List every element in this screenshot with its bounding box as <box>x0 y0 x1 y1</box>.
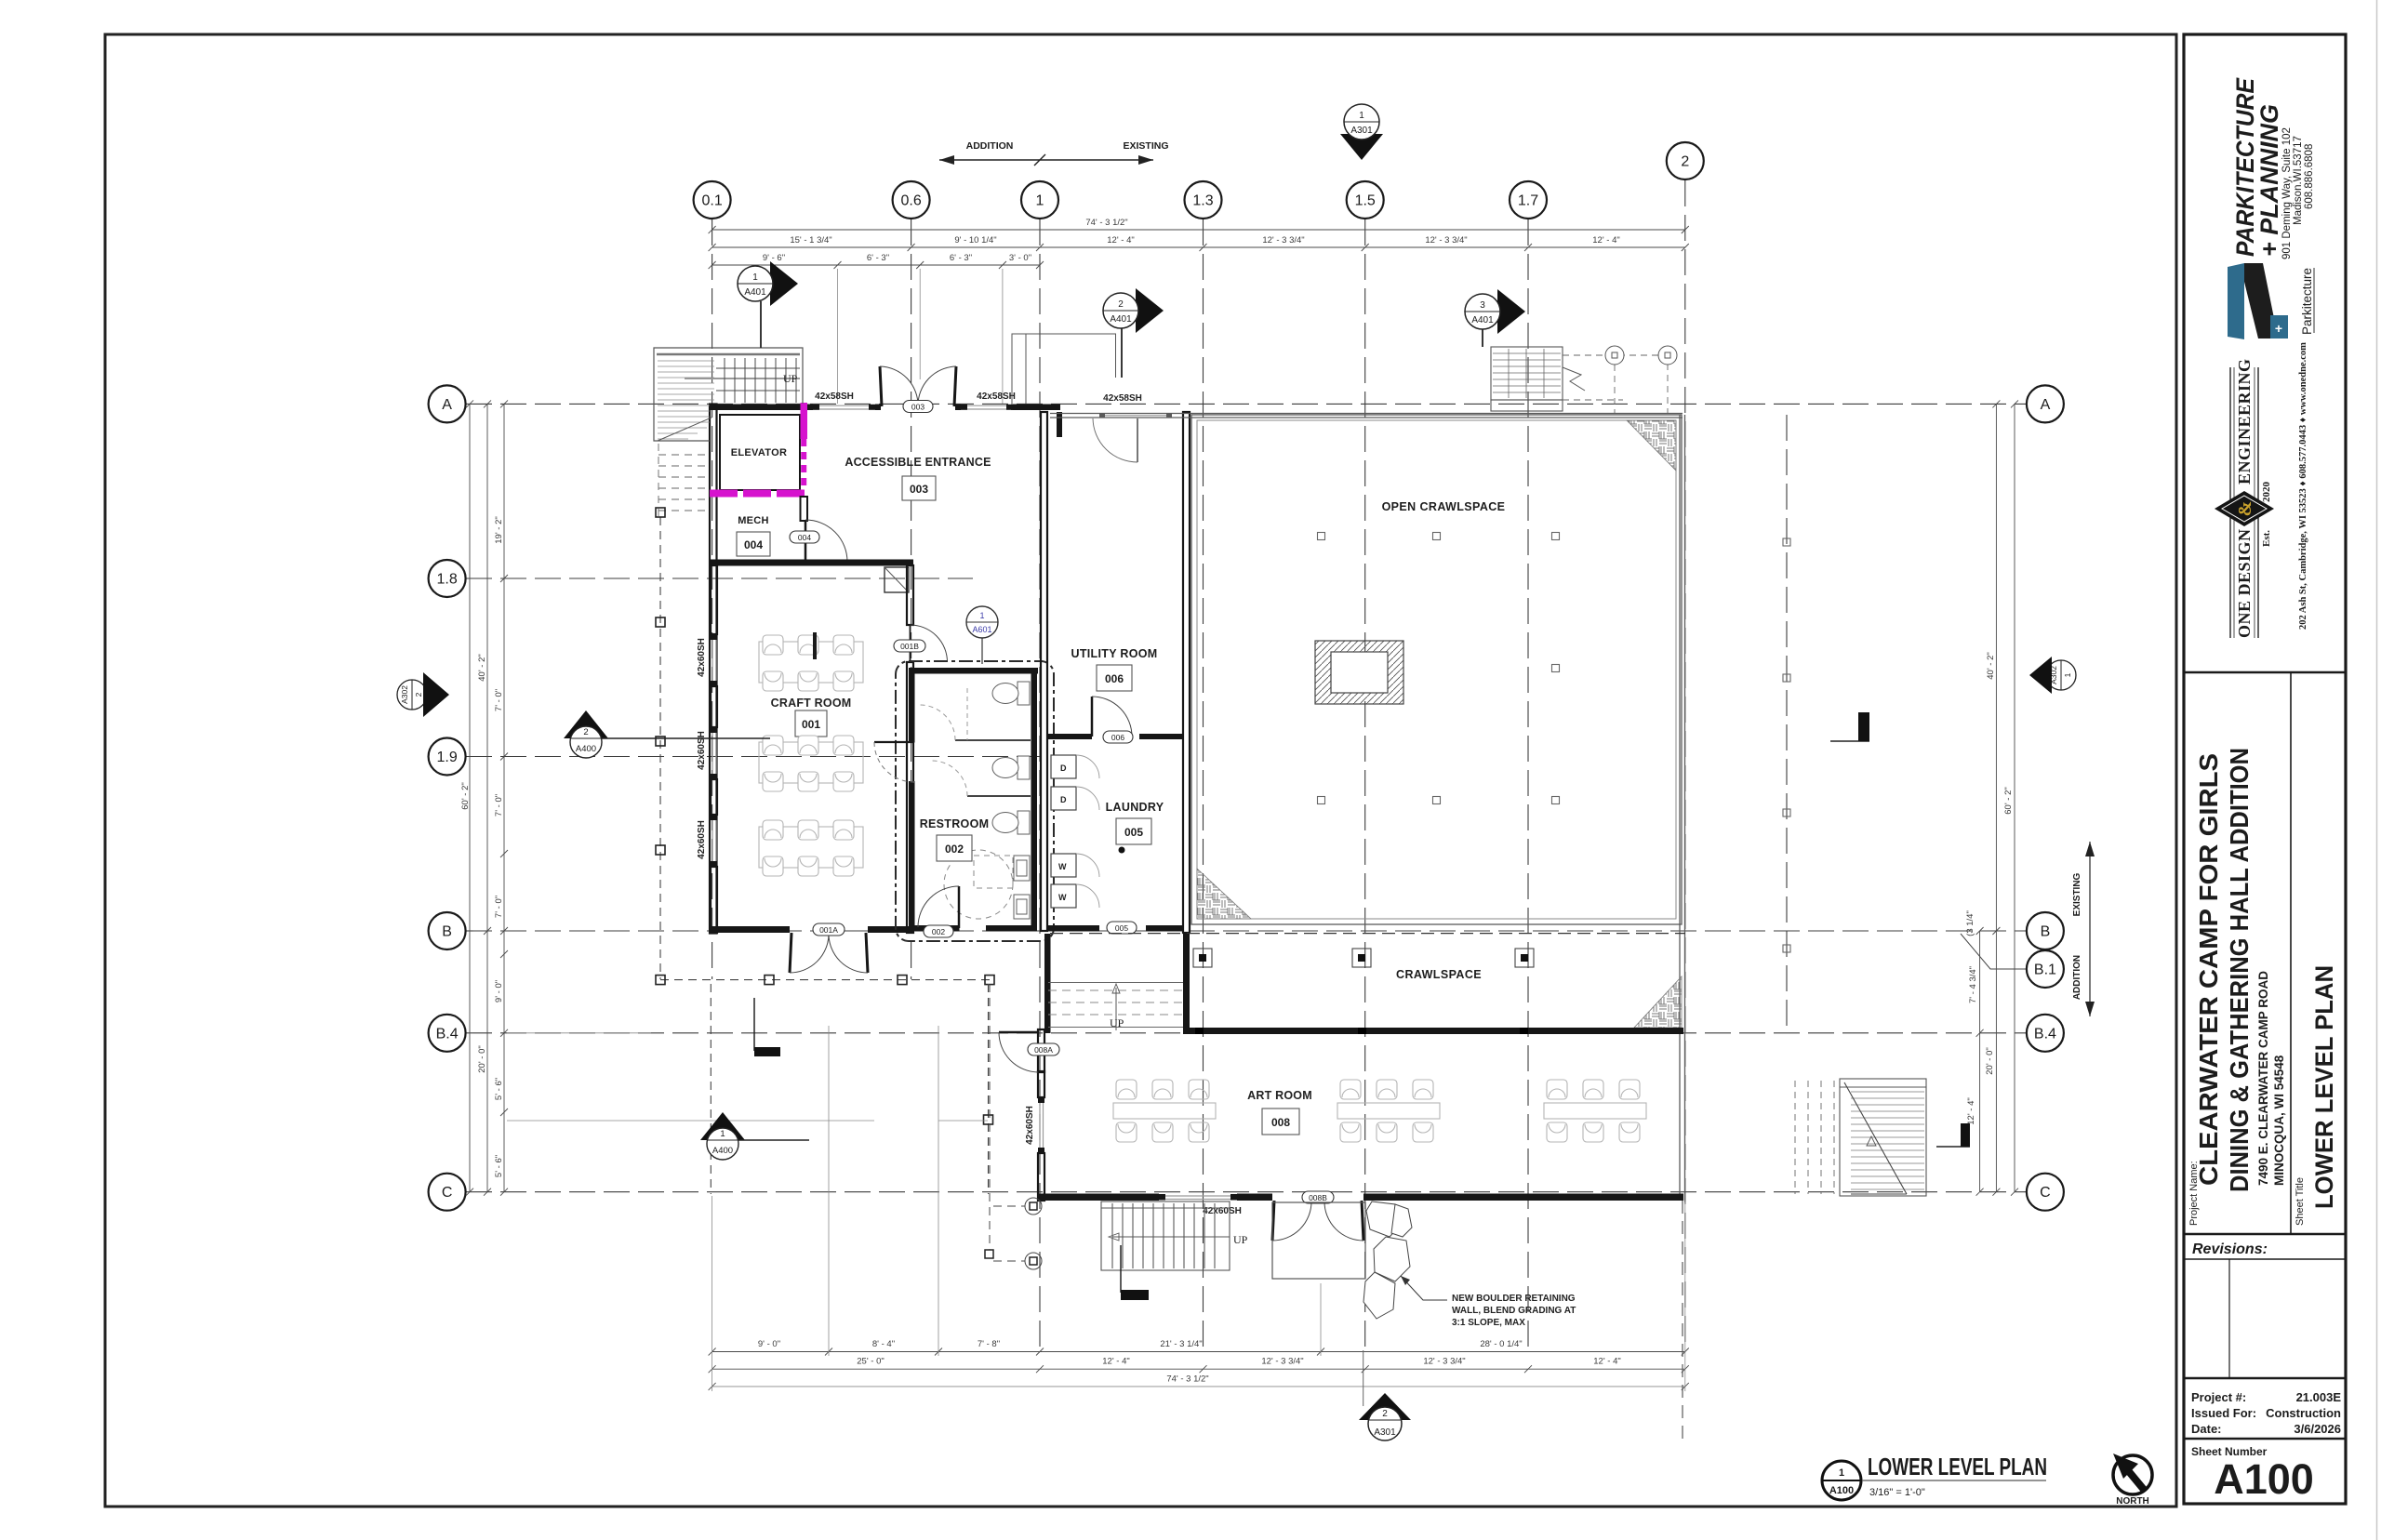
svg-text:ACCESSIBLE ENTRANCE: ACCESSIBLE ENTRANCE <box>845 456 991 469</box>
svg-text:19' - 2": 19' - 2" <box>494 516 504 543</box>
svg-text:12' - 4": 12' - 4" <box>1102 1357 1129 1367</box>
svg-text:12' - 3 3/4": 12' - 3 3/4" <box>1261 1357 1303 1367</box>
svg-text:Parkitecture: Parkitecture <box>2300 268 2314 335</box>
svg-text:7' - 0": 7' - 0" <box>494 794 504 816</box>
svg-text:NORTH: NORTH <box>2116 1496 2149 1507</box>
svg-text:1: 1 <box>752 272 758 283</box>
svg-text:CRAFT ROOM: CRAFT ROOM <box>771 697 852 710</box>
svg-text:1.3: 1.3 <box>1192 193 1213 209</box>
svg-text:42x60SH: 42x60SH <box>697 638 707 677</box>
svg-text:Revisions:: Revisions: <box>2192 1241 2268 1257</box>
svg-text:CLEARWATER CAMP FOR GIRLS: CLEARWATER CAMP FOR GIRLS <box>2194 753 2223 1186</box>
svg-text:UP: UP <box>783 372 798 385</box>
svg-text:ADDITION: ADDITION <box>2072 955 2082 1000</box>
svg-text:1: 1 <box>1839 1467 1844 1479</box>
svg-text:004: 004 <box>798 533 811 542</box>
svg-text:2: 2 <box>1681 154 1689 170</box>
svg-text:001A: 001A <box>819 925 838 935</box>
svg-text:B.1: B.1 <box>2034 962 2056 978</box>
svg-text:A301: A301 <box>1350 126 1373 136</box>
svg-text:60' - 2": 60' - 2" <box>2003 787 2014 814</box>
svg-text:B.4: B.4 <box>436 1026 459 1042</box>
svg-text:15' - 1 3/4": 15' - 1 3/4" <box>790 235 831 246</box>
svg-text:74' - 3 1/2": 74' - 3 1/2" <box>1166 1374 1208 1384</box>
svg-text:74' - 3 1/2": 74' - 3 1/2" <box>1085 218 1127 228</box>
svg-text:MINOCQUA, WI 54548: MINOCQUA, WI 54548 <box>2272 1055 2286 1186</box>
svg-text:1: 1 <box>1036 193 1044 209</box>
svg-text:42x60SH: 42x60SH <box>697 820 707 859</box>
svg-text:ART ROOM: ART ROOM <box>1247 1089 1312 1102</box>
svg-text:3/16" = 1'-0": 3/16" = 1'-0" <box>1869 1487 1925 1498</box>
svg-text:1: 1 <box>2063 672 2072 677</box>
svg-text:3' - 0": 3' - 0" <box>1009 253 1031 263</box>
svg-text:Sheet Title: Sheet Title <box>2295 1177 2306 1226</box>
svg-text:2: 2 <box>583 727 588 737</box>
svg-text:12' - 3 3/4": 12' - 3 3/4" <box>1423 1357 1465 1367</box>
svg-text:Issued For:: Issued For: <box>2191 1406 2256 1420</box>
svg-text:2: 2 <box>1382 1409 1388 1419</box>
svg-text:A401: A401 <box>1471 315 1494 325</box>
svg-text:1: 1 <box>979 611 984 620</box>
svg-text:21' - 3 1/4": 21' - 3 1/4" <box>1160 1339 1202 1349</box>
svg-text:RESTROOM: RESTROOM <box>920 817 990 830</box>
svg-text:9' - 10 1/4": 9' - 10 1/4" <box>954 235 996 246</box>
svg-text:0.1: 0.1 <box>701 193 722 209</box>
svg-text:+ PLANNING: + PLANNING <box>2255 104 2283 257</box>
svg-text:12' - 4": 12' - 4" <box>1966 1097 1976 1124</box>
svg-text:1.5: 1.5 <box>1355 193 1376 209</box>
svg-text:ADDITION: ADDITION <box>966 140 1014 152</box>
svg-text:40' - 2": 40' - 2" <box>1986 652 1996 679</box>
svg-text:0.6: 0.6 <box>900 193 921 209</box>
svg-text:5' - 6": 5' - 6" <box>494 1155 504 1177</box>
svg-text:7' - 0": 7' - 0" <box>494 689 504 711</box>
svg-text:DINING & GATHERING HALL ADDIT: DINING & GATHERING HALL ADDITION <box>2225 748 2254 1192</box>
svg-text:1.9: 1.9 <box>436 750 457 765</box>
svg-text:B: B <box>442 924 452 940</box>
svg-text:B.4: B.4 <box>2034 1026 2056 1042</box>
svg-text:A100: A100 <box>1829 1485 1854 1496</box>
svg-text:D: D <box>1060 763 1067 773</box>
svg-text:W: W <box>1058 862 1067 871</box>
svg-text:Date:: Date: <box>2191 1422 2222 1436</box>
svg-text:42x58SH: 42x58SH <box>815 392 854 402</box>
svg-text:7490 E. CLEARWATER CAMP ROAD: 7490 E. CLEARWATER CAMP ROAD <box>2256 971 2270 1186</box>
svg-text:B: B <box>2041 924 2051 940</box>
svg-text:NEW BOULDER RETAINING: NEW BOULDER RETAINING <box>1452 1294 1576 1304</box>
svg-text:ONE DESIGN: ONE DESIGN <box>2235 528 2254 638</box>
svg-text:12' - 3 3/4": 12' - 3 3/4" <box>1262 235 1304 246</box>
svg-text:Madison.WI.53717: Madison.WI.53717 <box>2293 136 2304 225</box>
svg-text:(3 1/4": (3 1/4" <box>1965 910 1975 936</box>
svg-text:8' - 4": 8' - 4" <box>872 1339 895 1349</box>
svg-text:A601: A601 <box>972 625 991 634</box>
svg-text:LAUNDRY: LAUNDRY <box>1106 801 1164 814</box>
svg-text:&: & <box>2235 501 2255 517</box>
svg-text:6' - 3": 6' - 3" <box>867 253 889 263</box>
svg-text:Project #:: Project #: <box>2191 1390 2246 1404</box>
svg-text:2: 2 <box>414 692 423 697</box>
svg-text:1.7: 1.7 <box>1518 193 1538 209</box>
svg-text:9' - 6": 9' - 6" <box>763 253 785 263</box>
svg-text:42x60SH: 42x60SH <box>697 731 707 770</box>
svg-text:003: 003 <box>910 483 928 496</box>
svg-text:A302: A302 <box>400 685 409 704</box>
svg-text:12' - 4": 12' - 4" <box>1593 1357 1620 1367</box>
svg-text:006: 006 <box>1111 733 1124 742</box>
svg-text:12' - 4": 12' - 4" <box>1107 235 1134 246</box>
svg-text:A100: A100 <box>2214 1455 2314 1503</box>
svg-text:MECH: MECH <box>738 515 769 526</box>
svg-text:3/6/2026: 3/6/2026 <box>2294 1422 2341 1436</box>
svg-text:EXISTING: EXISTING <box>2072 872 2082 916</box>
svg-text:9' - 0": 9' - 0" <box>494 980 504 1002</box>
svg-text:005: 005 <box>1115 923 1128 933</box>
svg-text:42x60SH: 42x60SH <box>1025 1106 1035 1145</box>
svg-text:A: A <box>2041 397 2051 413</box>
svg-text:001B: 001B <box>900 642 919 651</box>
svg-text:A401: A401 <box>744 287 766 298</box>
svg-text:7' - 4 3/4": 7' - 4 3/4" <box>1968 966 1978 1003</box>
svg-text:20' - 0": 20' - 0" <box>1985 1047 1995 1074</box>
svg-text:1: 1 <box>1359 111 1364 121</box>
svg-text:7' - 8": 7' - 8" <box>978 1339 1000 1349</box>
svg-text:12' - 3 3/4": 12' - 3 3/4" <box>1425 235 1467 246</box>
svg-text:002: 002 <box>932 927 945 936</box>
svg-text:A400: A400 <box>712 1146 733 1156</box>
svg-text:002: 002 <box>945 843 964 856</box>
svg-text:LOWER LEVEL PLAN: LOWER LEVEL PLAN <box>1868 1453 2047 1480</box>
svg-text:008: 008 <box>1271 1116 1290 1129</box>
svg-text:LOWER LEVEL PLAN: LOWER LEVEL PLAN <box>2310 965 2338 1209</box>
svg-text:008B: 008B <box>1309 1193 1327 1202</box>
svg-text:A301: A301 <box>1374 1427 1396 1438</box>
svg-text:Construction: Construction <box>2266 1406 2341 1420</box>
svg-text:42x58SH: 42x58SH <box>977 392 1016 402</box>
svg-text:OPEN CRAWLSPACE: OPEN CRAWLSPACE <box>1382 500 1506 513</box>
svg-text:001: 001 <box>802 718 820 731</box>
svg-text:006: 006 <box>1105 672 1124 685</box>
svg-text:003: 003 <box>911 403 924 412</box>
svg-text:12' - 4": 12' - 4" <box>1592 235 1619 246</box>
svg-text:UP: UP <box>1233 1233 1248 1246</box>
svg-text:25' - 0": 25' - 0" <box>857 1357 884 1367</box>
svg-text:A401: A401 <box>1110 314 1132 325</box>
svg-text:UP: UP <box>1110 1016 1124 1029</box>
svg-text:Est.: Est. <box>2261 530 2272 547</box>
svg-text:ELEVATOR: ELEVATOR <box>731 447 787 458</box>
svg-text:2: 2 <box>1118 299 1124 310</box>
svg-text:CRAWLSPACE: CRAWLSPACE <box>1396 968 1482 981</box>
svg-text:21.003E: 21.003E <box>2296 1390 2342 1404</box>
svg-text:901 Deming Way, Suite 102: 901 Deming Way, Suite 102 <box>2281 127 2293 259</box>
svg-text:42x58SH: 42x58SH <box>1103 393 1142 404</box>
svg-text:5' - 6": 5' - 6" <box>494 1078 504 1100</box>
svg-text:D: D <box>1060 795 1067 804</box>
svg-text:W: W <box>1058 893 1067 902</box>
svg-text:60' - 2": 60' - 2" <box>460 782 471 809</box>
svg-text:ENGINEERING: ENGINEERING <box>2235 358 2254 485</box>
svg-text:1: 1 <box>720 1129 725 1139</box>
svg-text:UTILITY ROOM: UTILITY ROOM <box>1071 647 1158 660</box>
svg-text:008A: 008A <box>1034 1045 1053 1055</box>
svg-text:3:1 SLOPE, MAX: 3:1 SLOPE, MAX <box>1452 1318 1525 1328</box>
svg-text:20' - 0": 20' - 0" <box>477 1045 487 1072</box>
svg-text:A: A <box>442 397 452 413</box>
svg-text:7' - 0": 7' - 0" <box>494 896 504 918</box>
svg-text:1.8: 1.8 <box>436 572 457 588</box>
svg-text:004: 004 <box>744 538 763 551</box>
svg-text:C: C <box>442 1185 453 1201</box>
svg-text:9' - 0": 9' - 0" <box>758 1339 780 1349</box>
svg-text:005: 005 <box>1124 826 1143 839</box>
svg-text:EXISTING: EXISTING <box>1123 140 1168 152</box>
svg-text:608.886.6808: 608.886.6808 <box>2304 144 2315 209</box>
svg-text:WALL, BLEND GRADING AT: WALL, BLEND GRADING AT <box>1452 1306 1576 1316</box>
svg-text:202 Ash St, Cambridge, WI 5352: 202 Ash St, Cambridge, WI 53523 ♦ 608.57… <box>2298 342 2308 630</box>
svg-text:3: 3 <box>1480 300 1485 311</box>
svg-text:2020: 2020 <box>2261 482 2272 503</box>
svg-text:A400: A400 <box>576 744 596 754</box>
svg-text:28' - 0 1/4": 28' - 0 1/4" <box>1480 1339 1522 1349</box>
svg-text:40' - 2": 40' - 2" <box>477 654 487 681</box>
svg-text:+: + <box>2275 321 2282 336</box>
svg-text:6' - 3": 6' - 3" <box>950 253 972 263</box>
svg-text:C: C <box>2040 1185 2051 1201</box>
